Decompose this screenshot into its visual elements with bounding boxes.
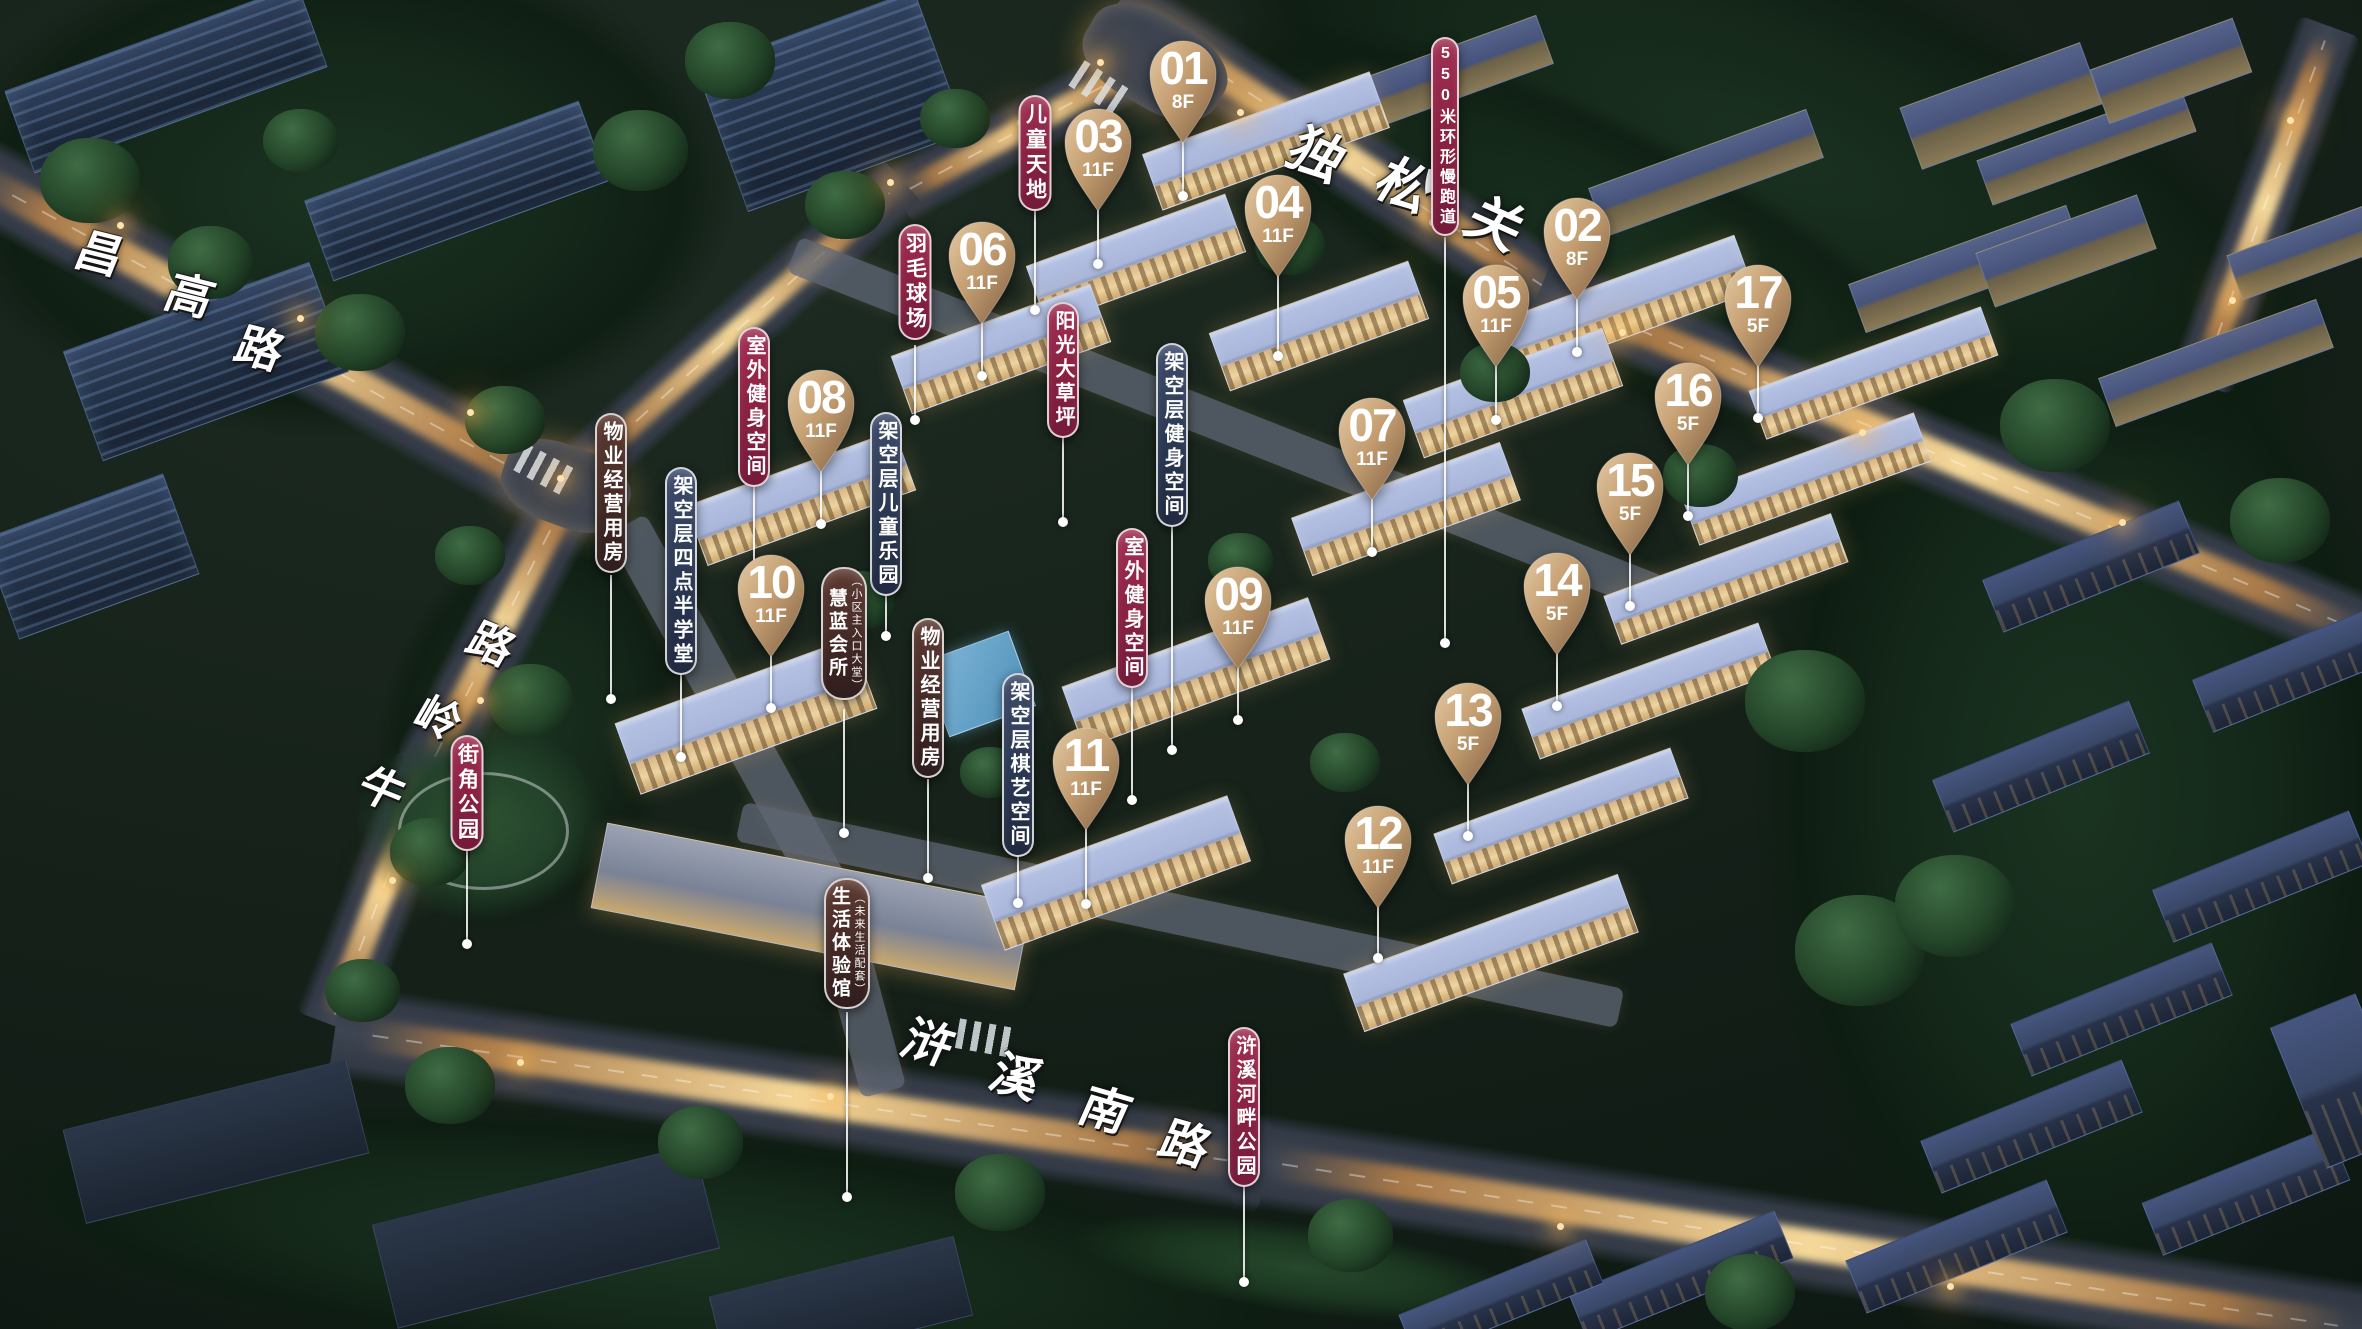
label-life-experience-hall: 生活体验馆︵未来生活配套︶ xyxy=(824,878,870,1009)
tree xyxy=(263,109,338,173)
street-lamp xyxy=(389,877,396,884)
label-huilan-clubhouse: 慧蓝会所︵小区主入口大堂︶ xyxy=(821,567,867,700)
label-jogging-track: 550米环形慢跑道 xyxy=(1431,37,1459,236)
label-connector-dot xyxy=(910,415,920,425)
label-text: 550米环形慢跑道 xyxy=(1433,39,1457,234)
tree xyxy=(465,386,545,454)
label-connector-dot xyxy=(1030,305,1040,315)
label-property-office-1: 物业经营用房 xyxy=(595,413,627,573)
tree xyxy=(40,138,140,223)
pin-connector-line xyxy=(1182,140,1184,196)
pin-floor-count: 5F xyxy=(1718,317,1798,336)
label-text: 街角公园 xyxy=(453,737,482,849)
street-lamp xyxy=(2229,297,2236,304)
label-text: 浒溪河畔公园 xyxy=(1230,1029,1258,1185)
pin-floor-count: 8F xyxy=(1143,93,1223,112)
street-lamp xyxy=(827,1093,834,1100)
building-pin-08[interactable]: 0811F xyxy=(781,361,861,473)
label-connector-dot xyxy=(1127,795,1137,805)
label-connector-line xyxy=(1131,688,1133,800)
label-children-world: 儿童天地 xyxy=(1019,95,1052,211)
label-connector-line xyxy=(1171,517,1173,750)
label-connector-dot xyxy=(676,752,686,762)
label-text: 羽毛球场 xyxy=(901,226,930,338)
pin-number: 14 xyxy=(1517,557,1597,603)
pin-connector-line xyxy=(820,469,822,524)
masterplan-night-aerial: 昌高路牛岭路独松关浒溪南路儿童天地羽毛球场室外健身空间阳光大草坪550米环形慢跑… xyxy=(0,0,2362,1329)
pin-connector-dot xyxy=(1625,601,1635,611)
street-lamp xyxy=(2119,519,2126,526)
pin-number: 08 xyxy=(781,374,861,420)
building-pin-14[interactable]: 145F xyxy=(1517,544,1597,656)
pin-connector-line xyxy=(1237,666,1239,720)
pin-floor-count: 5F xyxy=(1428,735,1508,754)
building-pin-10[interactable]: 1011F xyxy=(731,546,811,658)
pin-number: 06 xyxy=(942,226,1022,272)
pin-floor-count: 11F xyxy=(781,422,861,441)
pin-connector-line xyxy=(1097,208,1099,264)
building-pin-16[interactable]: 165F xyxy=(1648,354,1728,466)
tree xyxy=(315,294,405,371)
label-connector-dot xyxy=(1013,898,1023,908)
tree xyxy=(1895,855,2015,957)
label-connector-line xyxy=(1062,432,1064,522)
pin-connector-line xyxy=(1371,497,1373,552)
label-connector-dot xyxy=(842,1192,852,1202)
tree xyxy=(405,1047,495,1124)
pin-connector-dot xyxy=(1572,347,1582,357)
pin-floor-count: 8F xyxy=(1537,250,1617,269)
label-subtext: ︵小区主入口大堂︶ xyxy=(850,569,865,698)
pin-connector-dot xyxy=(1373,953,1383,963)
pin-floor-count: 11F xyxy=(942,274,1022,293)
pin-floor-count: 11F xyxy=(1332,450,1412,469)
label-connector-dot xyxy=(1058,517,1068,527)
pin-floor-count: 5F xyxy=(1590,505,1670,524)
pin-connector-dot xyxy=(1178,191,1188,201)
label-outdoor-fitness-1: 室外健身空间 xyxy=(738,327,770,487)
label-riverside-park: 浒溪河畔公园 xyxy=(1228,1027,1260,1187)
label-connector-line xyxy=(1444,237,1446,643)
label-connector-dot xyxy=(1167,745,1177,755)
pin-connector-dot xyxy=(1367,547,1377,557)
label-connector-line xyxy=(914,345,916,420)
pin-floor-count: 5F xyxy=(1648,415,1728,434)
label-connector-line xyxy=(1243,1180,1245,1282)
pin-number: 07 xyxy=(1332,402,1412,448)
label-text: 架空层儿童乐园 xyxy=(872,414,900,594)
pin-number: 13 xyxy=(1428,687,1508,733)
label-text: 室外健身空间 xyxy=(740,329,768,485)
pin-floor-count: 11F xyxy=(1338,858,1418,877)
tree xyxy=(1310,733,1380,793)
label-badminton-court: 羽毛球场 xyxy=(899,224,932,340)
pin-connector-dot xyxy=(1081,899,1091,909)
building-pin-05[interactable]: 0511F xyxy=(1456,256,1536,368)
tree xyxy=(2230,478,2330,563)
building-pin-09[interactable]: 0911F xyxy=(1198,558,1278,670)
tree xyxy=(325,959,400,1023)
pin-number: 10 xyxy=(731,559,811,605)
pin-number: 09 xyxy=(1198,571,1278,617)
tree xyxy=(920,89,990,149)
street-lamp xyxy=(1097,59,1104,66)
tree xyxy=(805,171,885,239)
site-building xyxy=(1209,261,1429,392)
pin-number: 17 xyxy=(1718,269,1798,315)
pin-number: 05 xyxy=(1456,269,1536,315)
label-connector-line xyxy=(846,1012,848,1197)
building-pin-17[interactable]: 175F xyxy=(1718,256,1798,368)
pin-connector-dot xyxy=(816,519,826,529)
pin-connector-line xyxy=(1495,364,1497,420)
tree xyxy=(1308,1199,1393,1271)
label-text: 架空层健身空间 xyxy=(1158,345,1186,525)
tree xyxy=(1745,650,1865,752)
label-connector-line xyxy=(927,779,929,878)
building-pin-03[interactable]: 0311F xyxy=(1058,100,1138,212)
pin-connector-dot xyxy=(1273,351,1283,361)
pin-connector-dot xyxy=(977,371,987,381)
label-text: 慧蓝会所 xyxy=(823,582,850,686)
label-text: 物业经营用房 xyxy=(914,620,942,776)
label-text: 物业经营用房 xyxy=(597,415,625,571)
street-lamp xyxy=(297,315,304,322)
pin-number: 02 xyxy=(1537,202,1617,248)
tree xyxy=(593,110,688,191)
building-pin-04[interactable]: 0411F xyxy=(1238,166,1318,278)
pin-number: 03 xyxy=(1058,113,1138,159)
street-lamp xyxy=(517,1059,524,1066)
tree xyxy=(658,1106,743,1178)
pin-connector-dot xyxy=(1683,511,1693,521)
street-lamp xyxy=(887,179,894,186)
pin-connector-dot xyxy=(766,703,776,713)
building-pin-02[interactable]: 028F xyxy=(1537,189,1617,301)
pin-connector-line xyxy=(1629,552,1631,606)
pin-connector-line xyxy=(981,321,983,376)
pin-connector-line xyxy=(1757,364,1759,418)
building-pin-06[interactable]: 0611F xyxy=(942,213,1022,325)
label-connector-line xyxy=(610,575,612,699)
label-text: 阳光大草坪 xyxy=(1049,304,1077,436)
label-connector-dot xyxy=(606,694,616,704)
label-text: 生活体验馆 xyxy=(826,880,853,1007)
label-connector-dot xyxy=(1440,638,1450,648)
label-connector-line xyxy=(843,709,845,833)
pin-floor-count: 11F xyxy=(1456,317,1536,336)
pin-connector-line xyxy=(770,654,772,708)
tree xyxy=(435,526,505,586)
pin-connector-line xyxy=(1085,827,1087,904)
building-pin-07[interactable]: 0711F xyxy=(1332,389,1412,501)
tree xyxy=(2000,379,2110,473)
pin-connector-dot xyxy=(1753,413,1763,423)
street-lamp xyxy=(1237,109,1244,116)
tree xyxy=(488,664,573,736)
building-pin-13[interactable]: 135F xyxy=(1428,674,1508,786)
street-lamp xyxy=(467,409,474,416)
street-lamp xyxy=(477,697,484,704)
pin-connector-line xyxy=(1377,905,1379,958)
building-pin-01[interactable]: 018F xyxy=(1143,32,1223,144)
tree xyxy=(685,22,775,99)
label-text: 架空层四点半学堂 xyxy=(667,469,695,673)
label-stilt-children-paradise: 架空层儿童乐园 xyxy=(870,412,902,596)
pin-connector-dot xyxy=(1463,831,1473,841)
street-lamp xyxy=(2287,117,2294,124)
label-outdoor-fitness-2: 室外健身空间 xyxy=(1116,528,1148,688)
label-stilt-after-school: 架空层四点半学堂 xyxy=(665,467,697,675)
street-lamp xyxy=(557,475,564,482)
label-stilt-fitness: 架空层健身空间 xyxy=(1156,343,1188,527)
pin-number: 11 xyxy=(1046,732,1126,778)
label-connector-line xyxy=(1017,854,1019,903)
pin-number: 04 xyxy=(1238,179,1318,225)
label-text: 架空层棋艺空间 xyxy=(1004,675,1032,855)
pin-floor-count: 11F xyxy=(1046,780,1126,799)
building-pin-11[interactable]: 1111F xyxy=(1046,719,1126,831)
label-subtext: ︵未来生活配套︶ xyxy=(853,886,868,1002)
pin-connector-line xyxy=(1277,274,1279,356)
street-lamp xyxy=(1947,1283,1954,1290)
label-sunshine-lawn: 阳光大草坪 xyxy=(1047,302,1079,438)
tree xyxy=(1705,1254,1795,1329)
pin-number: 01 xyxy=(1143,45,1223,91)
pin-connector-line xyxy=(1687,462,1689,516)
label-connector-line xyxy=(885,590,887,636)
pin-connector-line xyxy=(1556,652,1558,706)
office-building xyxy=(0,473,200,639)
pin-floor-count: 11F xyxy=(1198,619,1278,638)
pin-floor-count: 5F xyxy=(1517,605,1597,624)
label-connector-dot xyxy=(923,873,933,883)
pin-connector-dot xyxy=(1093,259,1103,269)
street-lamp xyxy=(1557,1223,1564,1230)
pin-connector-line xyxy=(1467,782,1469,836)
label-connector-line xyxy=(466,845,468,944)
label-connector-dot xyxy=(881,631,891,641)
pin-connector-dot xyxy=(1233,715,1243,725)
label-connector-dot xyxy=(839,828,849,838)
street-lamp xyxy=(1859,429,1866,436)
pin-connector-line xyxy=(1576,297,1578,352)
pin-connector-dot xyxy=(1552,701,1562,711)
pin-floor-count: 11F xyxy=(1238,227,1318,246)
label-text: 室外健身空间 xyxy=(1118,530,1146,686)
pin-connector-dot xyxy=(1491,415,1501,425)
label-street-corner-park: 街角公园 xyxy=(451,735,484,851)
street-lamp xyxy=(1619,329,1626,336)
pin-number: 12 xyxy=(1338,810,1418,856)
label-connector-dot xyxy=(1239,1277,1249,1287)
pin-floor-count: 11F xyxy=(1058,161,1138,180)
tree xyxy=(955,1154,1045,1231)
label-connector-line xyxy=(680,665,682,757)
label-connector-line xyxy=(1034,207,1036,310)
label-text: 儿童天地 xyxy=(1021,97,1050,209)
label-property-office-2: 物业经营用房 xyxy=(912,618,944,778)
building-pin-12[interactable]: 1211F xyxy=(1338,797,1418,909)
pin-number: 16 xyxy=(1648,367,1728,413)
label-connector-dot xyxy=(462,939,472,949)
label-stilt-chess: 架空层棋艺空间 xyxy=(1002,673,1034,857)
pin-floor-count: 11F xyxy=(731,607,811,626)
